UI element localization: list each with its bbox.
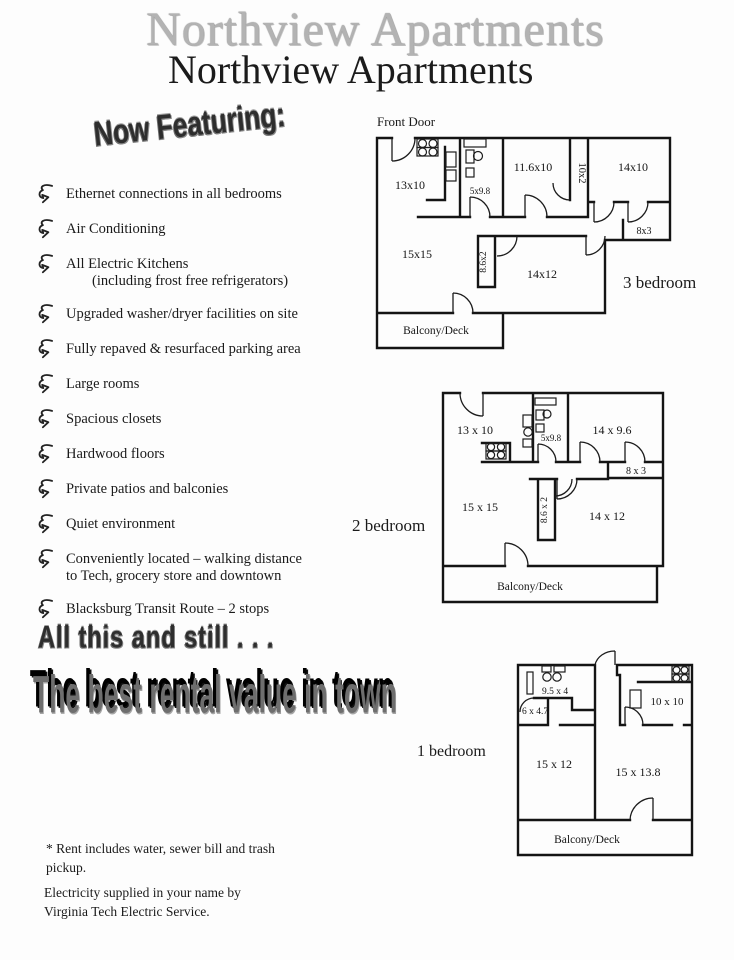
flyer-page: Northview Apartments Northview Apartment…: [0, 0, 734, 960]
room-label: 15 x 12: [536, 757, 572, 771]
room-label: 10 x 10: [651, 696, 685, 708]
room-label: 11.6x10: [514, 160, 553, 174]
room-labels-2br: 13 x 10 5x9.8 14 x 9.6 8 x 3 15 x 15 8.6…: [457, 423, 646, 593]
room-label: 8x3: [637, 226, 652, 237]
feature-text: Quiet environment: [66, 516, 175, 533]
curved-arrow-icon: [36, 373, 58, 395]
feature-item: Air Conditioning: [36, 221, 366, 240]
room-label: 15 x 15: [462, 500, 498, 514]
curved-arrow-icon: [36, 303, 58, 325]
room-label: Balcony/Deck: [497, 581, 563, 593]
feature-item: Upgraded washer/dryer facilities on site: [36, 306, 366, 325]
room-label: 14 x 9.6: [593, 423, 632, 437]
feature-text: Private patios and balconies: [66, 481, 228, 498]
curved-arrow-icon: [36, 598, 58, 620]
curved-arrow-icon: [36, 218, 58, 240]
feature-item: Hardwood floors: [36, 446, 366, 465]
footnote-electric: Electricity supplied in your name by Vir…: [44, 884, 264, 922]
doors-1br: [520, 651, 653, 820]
feature-item: Quiet environment: [36, 516, 366, 535]
now-featuring-heading: Now Featuring:: [92, 96, 287, 155]
feature-text: Large rooms: [66, 376, 139, 393]
curved-arrow-icon: [36, 513, 58, 535]
feature-text: Ethernet connections in all bedrooms: [66, 186, 282, 203]
room-label: 14x10: [618, 160, 648, 174]
curved-arrow-icon: [36, 478, 58, 500]
room-label: 9.5 x 4: [542, 687, 568, 697]
kitchen-bath-fixtures: [486, 398, 556, 459]
room-label: 8 x 3: [626, 466, 646, 477]
curved-arrow-icon: [36, 253, 58, 275]
feature-item: Private patios and balconies: [36, 481, 366, 500]
room-label: 13 x 10: [457, 423, 493, 437]
room-label: 8.6x2: [479, 251, 489, 273]
feature-item: Blacksburg Transit Route – 2 stops: [36, 601, 366, 620]
room-label: 5x9.8: [470, 186, 491, 196]
feature-text: Fully repaved & resurfaced parking area: [66, 341, 301, 358]
footnote-rent: * Rent includes water, sewer bill and tr…: [46, 840, 298, 878]
feature-text: Blacksburg Transit Route – 2 stops: [66, 601, 269, 618]
room-label: 15x15: [402, 247, 432, 261]
feature-list: Ethernet connections in all bedrooms Air…: [36, 186, 366, 636]
room-label: Balcony/Deck: [554, 834, 620, 846]
feature-text: Spacious closets: [66, 411, 161, 428]
room-label: Balcony/Deck: [403, 325, 469, 337]
feature-text: Upgraded washer/dryer facilities on site: [66, 306, 298, 323]
room-label: 14x12: [527, 267, 557, 281]
page-title: Northview Apartments: [168, 46, 534, 93]
feature-text: All Electric Kitchens(including frost fr…: [66, 256, 288, 290]
tagline-all-this: All this and still . . .: [38, 620, 274, 656]
curved-arrow-icon: [36, 408, 58, 430]
floor-plan-3-bedroom: 13x10 5x9.8 11.6x10 10x2 14x10 8x3 15x15…: [370, 110, 692, 355]
curved-arrow-icon: [36, 183, 58, 205]
curved-arrow-icon: [36, 443, 58, 465]
floor-plan-1-bedroom: 9.5 x 4 6 x 4.7 10 x 10 15 x 12 15 x 13.…: [490, 650, 734, 880]
feature-item: Spacious closets: [36, 411, 366, 430]
room-label: 15 x 13.8: [616, 765, 661, 779]
plan-caption-1-bedroom: 1 bedroom: [417, 743, 486, 761]
room-label: 5x9.8: [541, 433, 562, 443]
room-labels-1br: 9.5 x 4 6 x 4.7 10 x 10 15 x 12 15 x 13.…: [522, 687, 684, 846]
plan-caption-2-bedroom: 2 bedroom: [352, 516, 425, 536]
feature-text: Conveniently located – walking distancet…: [66, 551, 302, 585]
feature-item: Conveniently located – walking distancet…: [36, 551, 366, 585]
room-label: 8.6 x 2: [540, 497, 550, 523]
curved-arrow-icon: [36, 338, 58, 360]
floor-plan-2-bedroom: 13 x 10 5x9.8 14 x 9.6 8 x 3 15 x 15 8.6…: [420, 380, 720, 610]
feature-item: Fully repaved & resurfaced parking area: [36, 341, 366, 360]
feature-item: Ethernet connections in all bedrooms: [36, 186, 366, 205]
kitchen-bath-fixtures: [417, 139, 486, 181]
curved-arrow-icon: [36, 548, 58, 570]
room-labels-3br: 13x10 5x9.8 11.6x10 10x2 14x10 8x3 15x15…: [395, 160, 652, 337]
room-label: 6 x 4.7: [522, 707, 548, 717]
room-label: 10x2: [576, 163, 587, 184]
feature-item: All Electric Kitchens(including frost fr…: [36, 256, 366, 290]
tagline-best-value: The best rental value in town: [33, 666, 397, 726]
feature-text: Air Conditioning: [66, 221, 166, 238]
feature-item: Large rooms: [36, 376, 366, 395]
room-label: 14 x 12: [589, 509, 625, 523]
feature-text: Hardwood floors: [66, 446, 165, 463]
room-label: 13x10: [395, 178, 425, 192]
